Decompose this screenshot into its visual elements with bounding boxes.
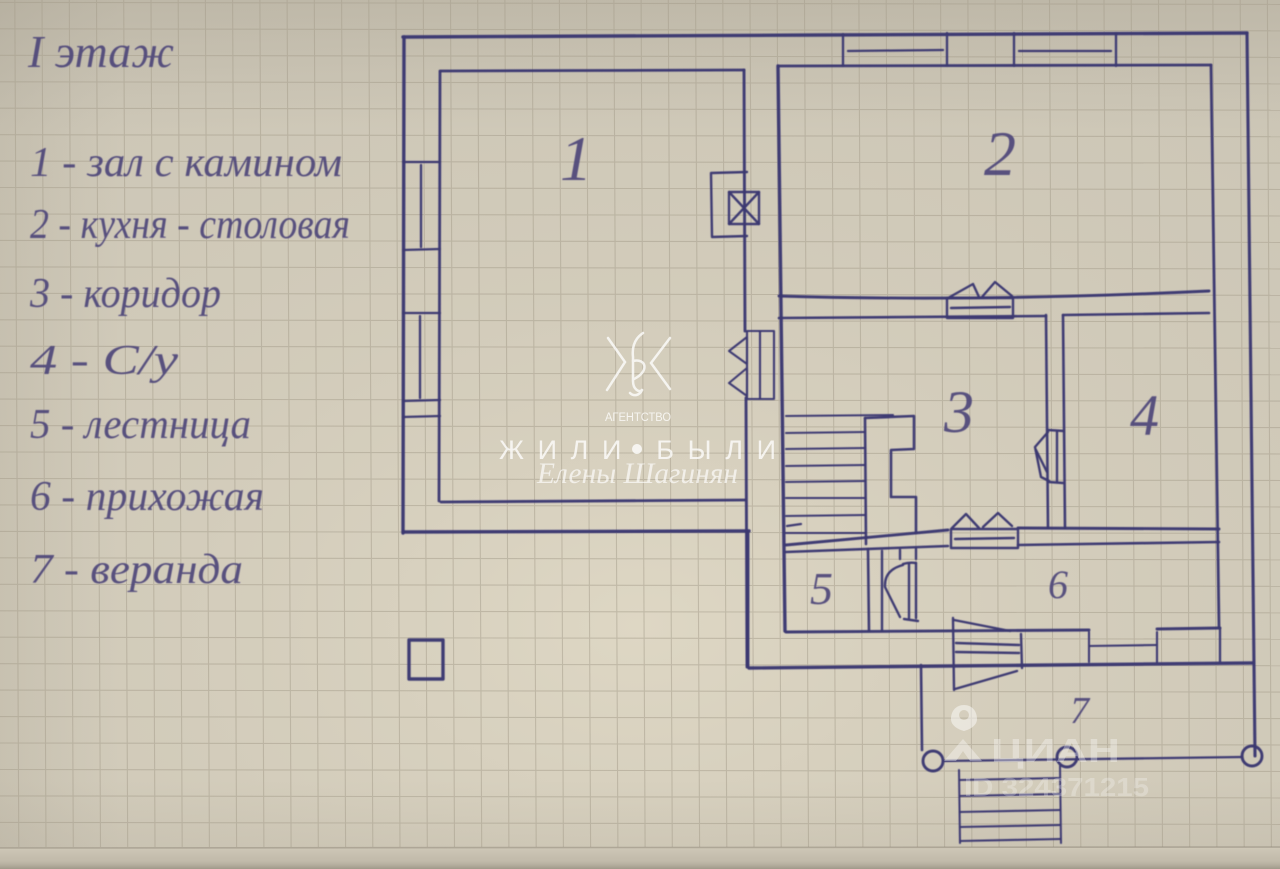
- svg-text:1 - зал с камином: 1 - зал с камином: [30, 140, 342, 186]
- svg-text:2 - кухня - столовая: 2 - кухня - столовая: [30, 202, 350, 248]
- svg-text:ID 324371215: ID 324371215: [964, 772, 1149, 802]
- svg-text:2: 2: [984, 118, 1016, 189]
- svg-text:6 - прихожая: 6 - прихожая: [30, 474, 264, 520]
- svg-text:4: 4: [1130, 383, 1159, 448]
- svg-text:АГЕНТСТВО: АГЕНТСТВО: [605, 412, 671, 424]
- svg-text:5 - лестница: 5 - лестница: [30, 402, 251, 448]
- svg-text:1: 1: [560, 123, 592, 194]
- svg-text:Елены Шагинян: Елены Шагинян: [536, 457, 738, 490]
- svg-text:I этаж: I этаж: [27, 26, 174, 77]
- svg-text:6: 6: [1048, 562, 1068, 607]
- svg-text:3 - коридор: 3 - коридор: [29, 271, 221, 317]
- svg-text:5: 5: [810, 563, 833, 614]
- svg-text:4 - С/у: 4 - С/у: [30, 338, 178, 384]
- svg-text:7 - веранда: 7 - веранда: [30, 547, 243, 593]
- svg-text:ЦИАН: ЦИАН: [991, 732, 1120, 769]
- svg-text:3: 3: [943, 379, 974, 445]
- svg-text:7: 7: [1070, 690, 1091, 732]
